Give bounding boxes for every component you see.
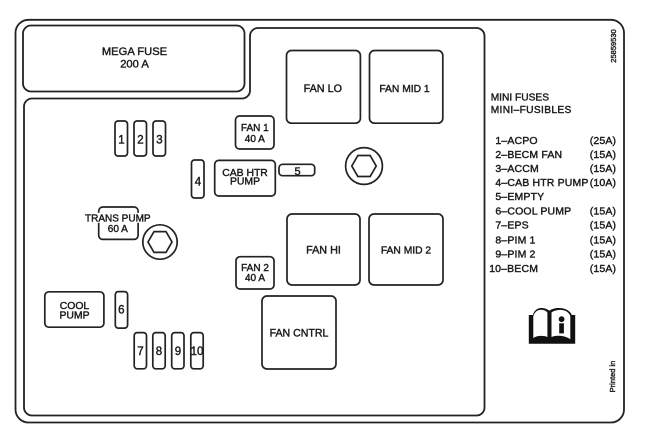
svg-text:3: 3 (156, 135, 162, 147)
svg-text:(15A): (15A) (590, 235, 616, 247)
svg-text:40 A: 40 A (245, 134, 265, 145)
svg-text:MEGA FUSE: MEGA FUSE (102, 46, 167, 58)
svg-text:(15A): (15A) (590, 205, 616, 217)
svg-text:FAN MID 2: FAN MID 2 (381, 246, 432, 257)
svg-text:MINI–FUSIBLES: MINI–FUSIBLES (491, 105, 572, 116)
svg-text:4–CAB HTR PUMP: 4–CAB HTR PUMP (495, 177, 588, 189)
svg-text:(25A): (25A) (590, 135, 616, 147)
svg-text:40 A: 40 A (245, 273, 265, 284)
svg-text:8–PIM 1: 8–PIM 1 (495, 235, 535, 247)
svg-text:7: 7 (137, 346, 143, 358)
svg-text:(10A): (10A) (590, 177, 616, 189)
svg-text:FAN HI: FAN HI (306, 245, 341, 257)
svg-text:10: 10 (191, 346, 204, 358)
svg-text:6: 6 (118, 305, 124, 317)
svg-text:25859530: 25859530 (609, 29, 618, 62)
svg-text:FAN MID 1: FAN MID 1 (379, 84, 430, 95)
svg-text:Printed in: Printed in (608, 361, 617, 393)
svg-text:5: 5 (294, 166, 300, 178)
svg-text:7–EPS: 7–EPS (495, 220, 528, 232)
svg-text:2–BECM FAN: 2–BECM FAN (495, 149, 562, 161)
svg-text:(15A): (15A) (590, 163, 616, 175)
svg-text:1: 1 (118, 135, 124, 147)
svg-text:(15A): (15A) (590, 263, 616, 275)
svg-text:FAN CNTRL: FAN CNTRL (270, 328, 329, 340)
svg-text:60 A: 60 A (108, 224, 128, 235)
svg-text:2: 2 (137, 135, 143, 147)
svg-text:FAN 1: FAN 1 (241, 123, 269, 134)
svg-text:(15A): (15A) (590, 220, 616, 232)
svg-text:200 A: 200 A (120, 58, 149, 70)
svg-text:(15A): (15A) (590, 149, 616, 161)
svg-text:(15A): (15A) (590, 249, 616, 261)
svg-text:TRANS PUMP: TRANS PUMP (85, 213, 151, 224)
svg-text:FAN LO: FAN LO (304, 83, 342, 95)
svg-text:9–PIM 2: 9–PIM 2 (495, 249, 535, 261)
svg-text:1–ACPO: 1–ACPO (495, 135, 537, 147)
svg-text:9: 9 (175, 346, 181, 358)
svg-text:PUMP: PUMP (59, 311, 89, 322)
svg-text:8: 8 (156, 346, 162, 358)
svg-text:4: 4 (195, 177, 202, 189)
svg-text:3–ACCM: 3–ACCM (495, 163, 539, 175)
svg-text:MINI FUSES: MINI FUSES (491, 92, 550, 103)
svg-text:10–BECM: 10–BECM (489, 263, 538, 275)
svg-text:5–EMPTY: 5–EMPTY (495, 191, 544, 203)
svg-text:6–COOL PUMP: 6–COOL PUMP (495, 205, 571, 217)
svg-text:PUMP: PUMP (230, 177, 260, 188)
